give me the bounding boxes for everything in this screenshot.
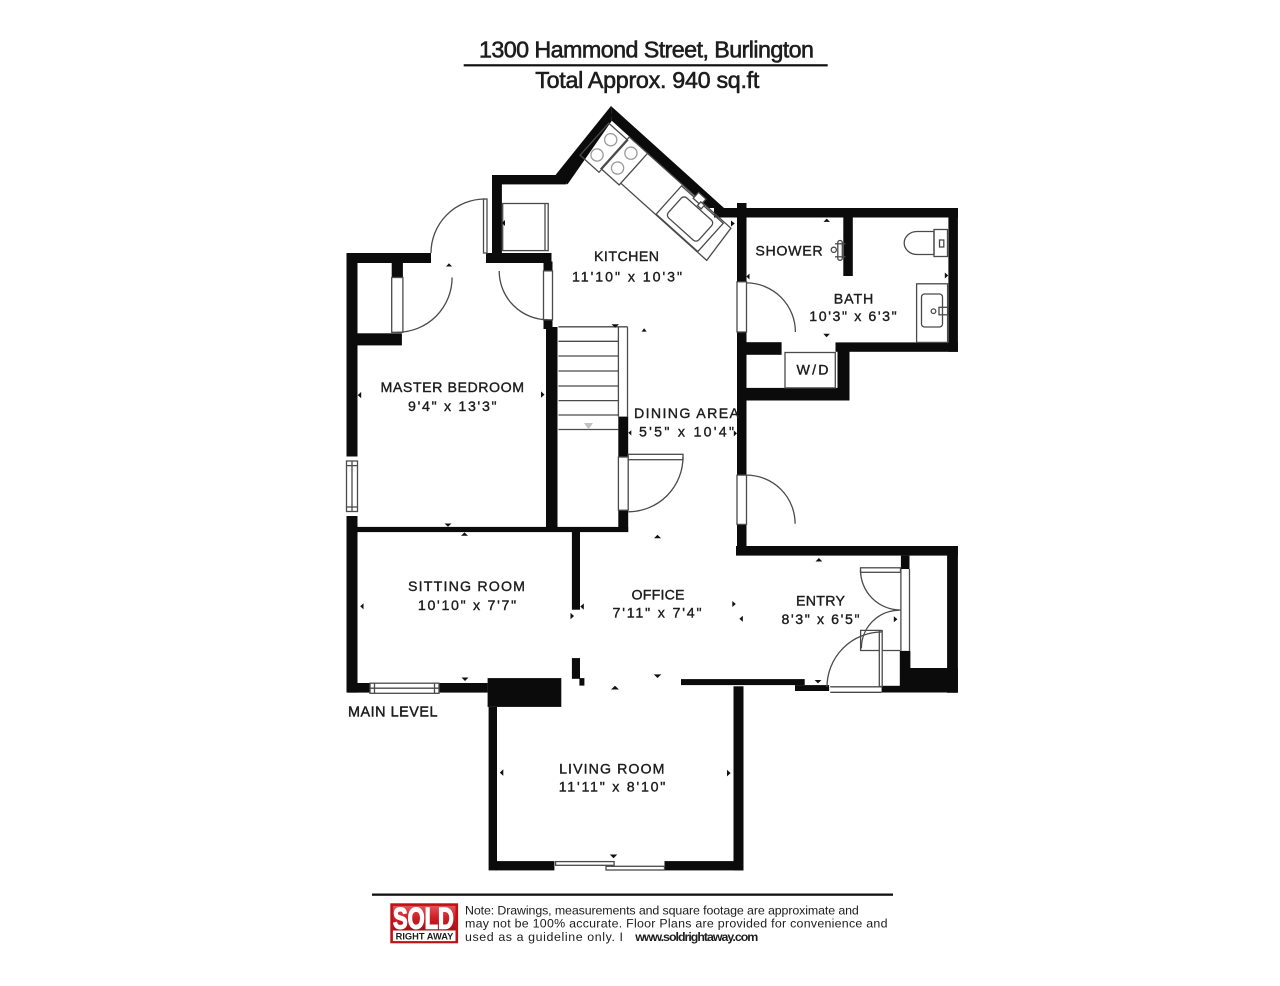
svg-text:Total Approx. 940 sq.ft: Total Approx. 940 sq.ft bbox=[535, 67, 760, 93]
svg-text:W/D: W/D bbox=[797, 363, 829, 379]
svg-text:8'3" x 6'5": 8'3" x 6'5" bbox=[782, 612, 860, 628]
svg-text:may not be 100% accurate. Flo: may not be 100% accurate. Floor Plans ar… bbox=[465, 917, 888, 931]
svg-text:OFFICE: OFFICE bbox=[632, 588, 685, 604]
svg-text:KITCHEN: KITCHEN bbox=[594, 249, 659, 265]
svg-text:used as a guideline only. I: used as a guideline only. I bbox=[465, 930, 623, 944]
svg-text:1300 Hammond Street, Burlingto: 1300 Hammond Street, Burlington bbox=[479, 36, 814, 62]
svg-text:ENTRY: ENTRY bbox=[796, 594, 846, 610]
svg-text:5'5" x 10'4": 5'5" x 10'4" bbox=[639, 424, 734, 440]
svg-text:7'11" x 7'4": 7'11" x 7'4" bbox=[613, 606, 702, 622]
svg-text:Note: Drawings, measurements a: Note: Drawings, measurements and square … bbox=[465, 903, 859, 917]
svg-text:SITTING ROOM: SITTING ROOM bbox=[408, 579, 525, 595]
svg-text:SHOWER: SHOWER bbox=[755, 244, 822, 260]
svg-text:MASTER BEDROOM: MASTER BEDROOM bbox=[381, 380, 525, 396]
svg-text:9'4" x 13'3": 9'4" x 13'3" bbox=[408, 399, 497, 415]
svg-text:10'10" x 7'7": 10'10" x 7'7" bbox=[418, 598, 516, 614]
svg-text:BATH: BATH bbox=[834, 292, 874, 308]
svg-text:LIVING ROOM: LIVING ROOM bbox=[559, 762, 664, 778]
svg-text:MAIN LEVEL: MAIN LEVEL bbox=[348, 704, 438, 720]
svg-text:RIGHT AWAY: RIGHT AWAY bbox=[396, 931, 454, 941]
svg-text:www.soldrightaway.com: www.soldrightaway.com bbox=[634, 930, 758, 944]
